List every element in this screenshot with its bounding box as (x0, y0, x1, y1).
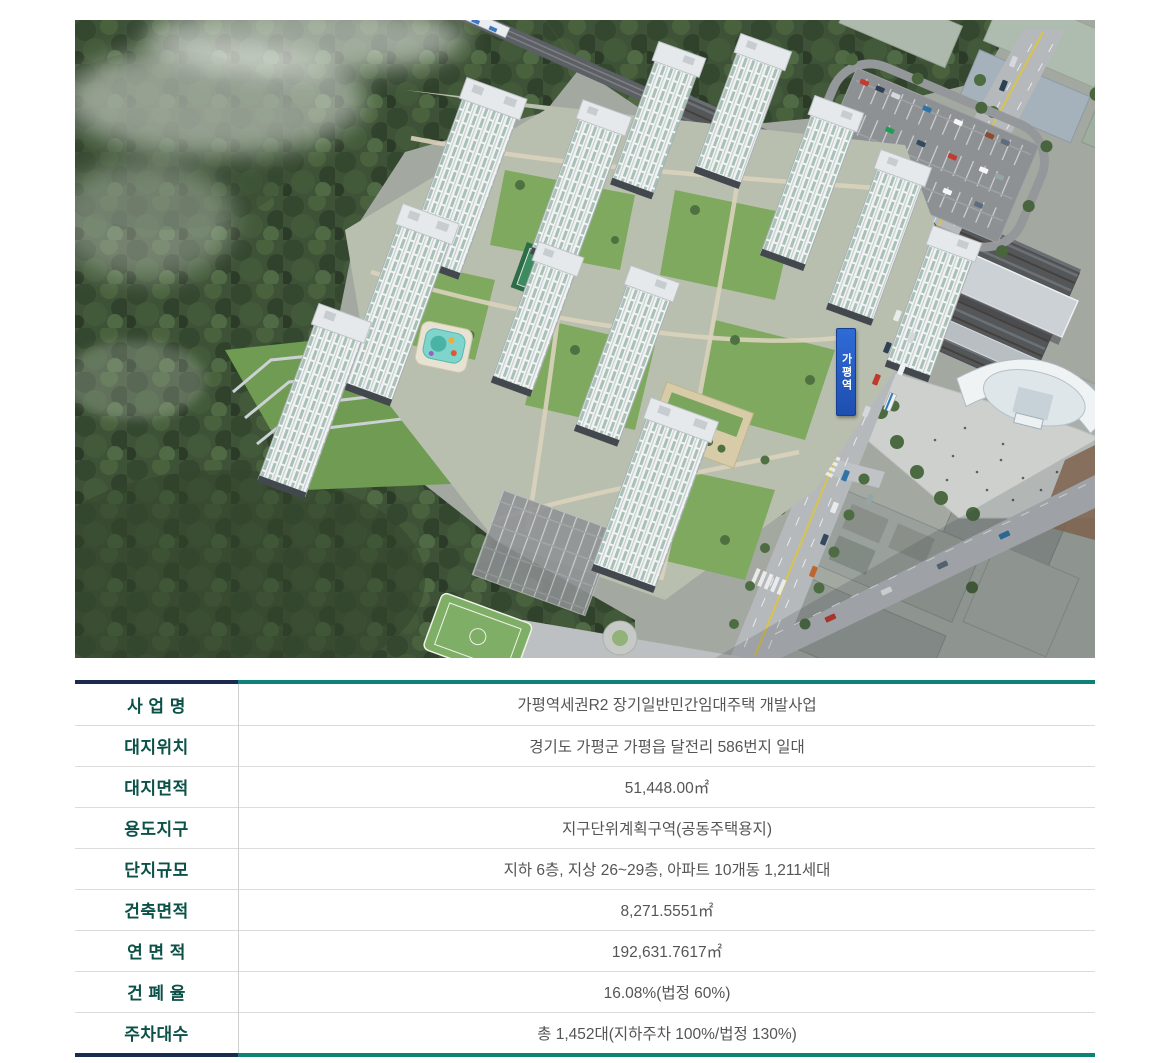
row-label: 용도지구 (75, 807, 239, 848)
table-row: 대지면적 51,448.00㎡ (75, 766, 1095, 807)
table-row: 연 면 적 192,631.7617㎡ (75, 930, 1095, 971)
table-row: 사 업 명 가평역세권R2 장기일반민간임대주택 개발사업 (75, 684, 1095, 725)
row-label: 건축면적 (75, 889, 239, 930)
aerial-render: 가평역 (75, 20, 1095, 658)
row-label: 연 면 적 (75, 930, 239, 971)
row-value: 가평역세권R2 장기일반민간임대주택 개발사업 (239, 684, 1096, 725)
bottom-border-teal (238, 1053, 1095, 1057)
row-value: 16.08%(법정 60%) (239, 971, 1096, 1012)
table-row: 단지규모 지하 6층, 지상 26~29층, 아파트 10개동 1,211세대 (75, 848, 1095, 889)
row-value: 경기도 가평군 가평읍 달전리 586번지 일대 (239, 725, 1096, 766)
project-info-table: 사 업 명 가평역세권R2 장기일반민간임대주택 개발사업 대지위치 경기도 가… (75, 684, 1095, 1053)
station-sign: 가평역 (836, 328, 856, 416)
table-row: 건 폐 율 16.08%(법정 60%) (75, 971, 1095, 1012)
table-row: 대지위치 경기도 가평군 가평읍 달전리 586번지 일대 (75, 725, 1095, 766)
table-row: 건축면적 8,271.5551㎡ (75, 889, 1095, 930)
row-value: 총 1,452대(지하주차 100%/법정 130%) (239, 1012, 1096, 1053)
table-top-border (75, 680, 1095, 684)
row-label: 사 업 명 (75, 684, 239, 725)
top-border-navy (75, 680, 238, 684)
row-value: 8,271.5551㎡ (239, 889, 1096, 930)
row-label: 건 폐 율 (75, 971, 239, 1012)
row-value: 지구단위계획구역(공동주택용지) (239, 807, 1096, 848)
row-label: 단지규모 (75, 848, 239, 889)
circular-plaza (603, 621, 637, 655)
bottom-border-navy (75, 1053, 238, 1057)
row-value: 51,448.00㎡ (239, 766, 1096, 807)
row-value: 192,631.7617㎡ (239, 930, 1096, 971)
table-row: 주차대수 총 1,452대(지하주차 100%/법정 130%) (75, 1012, 1095, 1053)
row-label: 대지위치 (75, 725, 239, 766)
top-border-teal (238, 680, 1095, 684)
project-info-section: 사 업 명 가평역세권R2 장기일반민간임대주택 개발사업 대지위치 경기도 가… (75, 680, 1095, 1057)
table-bottom-border (75, 1053, 1095, 1057)
row-label: 주차대수 (75, 1012, 239, 1053)
row-value: 지하 6층, 지상 26~29층, 아파트 10개동 1,211세대 (239, 848, 1096, 889)
aerial-illustration (75, 20, 1095, 658)
table-row: 용도지구 지구단위계획구역(공동주택용지) (75, 807, 1095, 848)
row-label: 대지면적 (75, 766, 239, 807)
